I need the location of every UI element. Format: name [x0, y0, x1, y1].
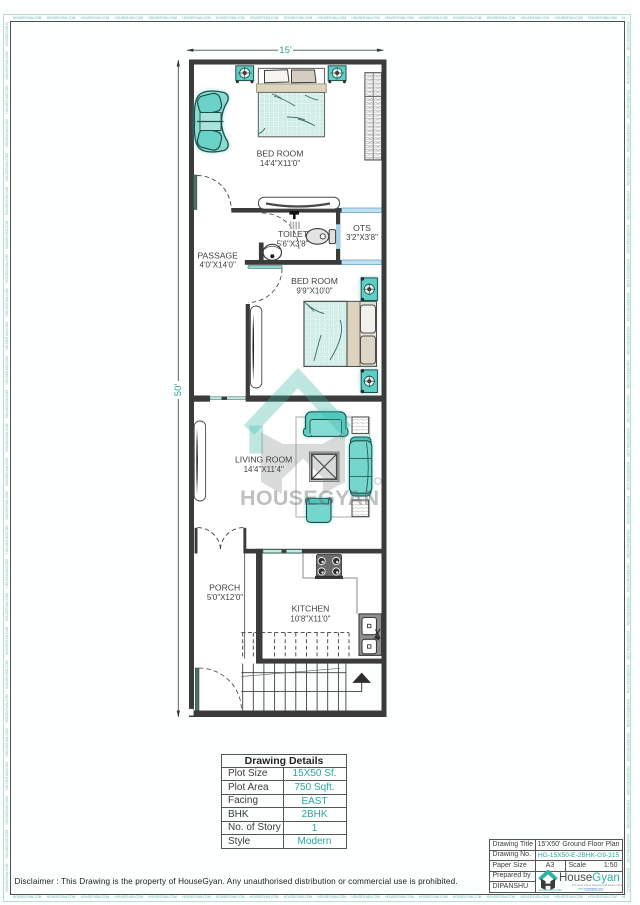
svg-text:TOILET: TOILET — [278, 229, 309, 239]
svg-text:OTS: OTS — [353, 223, 371, 233]
svg-text:KITCHEN: KITCHEN — [292, 604, 330, 614]
svg-text:HOUSEGYAN.COM: HOUSEGYAN.COM — [538, 888, 561, 891]
svg-text:5'0"X12'0": 5'0"X12'0" — [207, 593, 243, 602]
svg-text:50': 50' — [173, 384, 184, 397]
svg-text:10'8"X11'0": 10'8"X11'0" — [290, 615, 330, 624]
svg-text:BED ROOM: BED ROOM — [257, 149, 304, 159]
svg-text:3'2"X3'8": 3'2"X3'8" — [346, 233, 378, 242]
svg-text:visit housegyan.com: visit housegyan.com — [578, 887, 604, 891]
svg-text:14'4"X11'4": 14'4"X11'4" — [244, 465, 284, 474]
svg-text:LIVING ROOM: LIVING ROOM — [235, 455, 292, 465]
svg-text:4'0"X14'0": 4'0"X14'0" — [200, 261, 236, 270]
svg-text:PASSAGE: PASSAGE — [197, 251, 238, 261]
svg-text:5'6"X3'8": 5'6"X3'8" — [277, 240, 309, 249]
svg-text:14'4"X11'0": 14'4"X11'0" — [260, 159, 300, 168]
svg-text:BED ROOM: BED ROOM — [291, 276, 338, 286]
svg-text:15': 15' — [279, 45, 292, 56]
svg-text:HOUSEGYAN: HOUSEGYAN — [240, 486, 379, 510]
svg-text:9'9"X10'0": 9'9"X10'0" — [296, 287, 332, 296]
svg-text:PORCH: PORCH — [209, 583, 240, 593]
